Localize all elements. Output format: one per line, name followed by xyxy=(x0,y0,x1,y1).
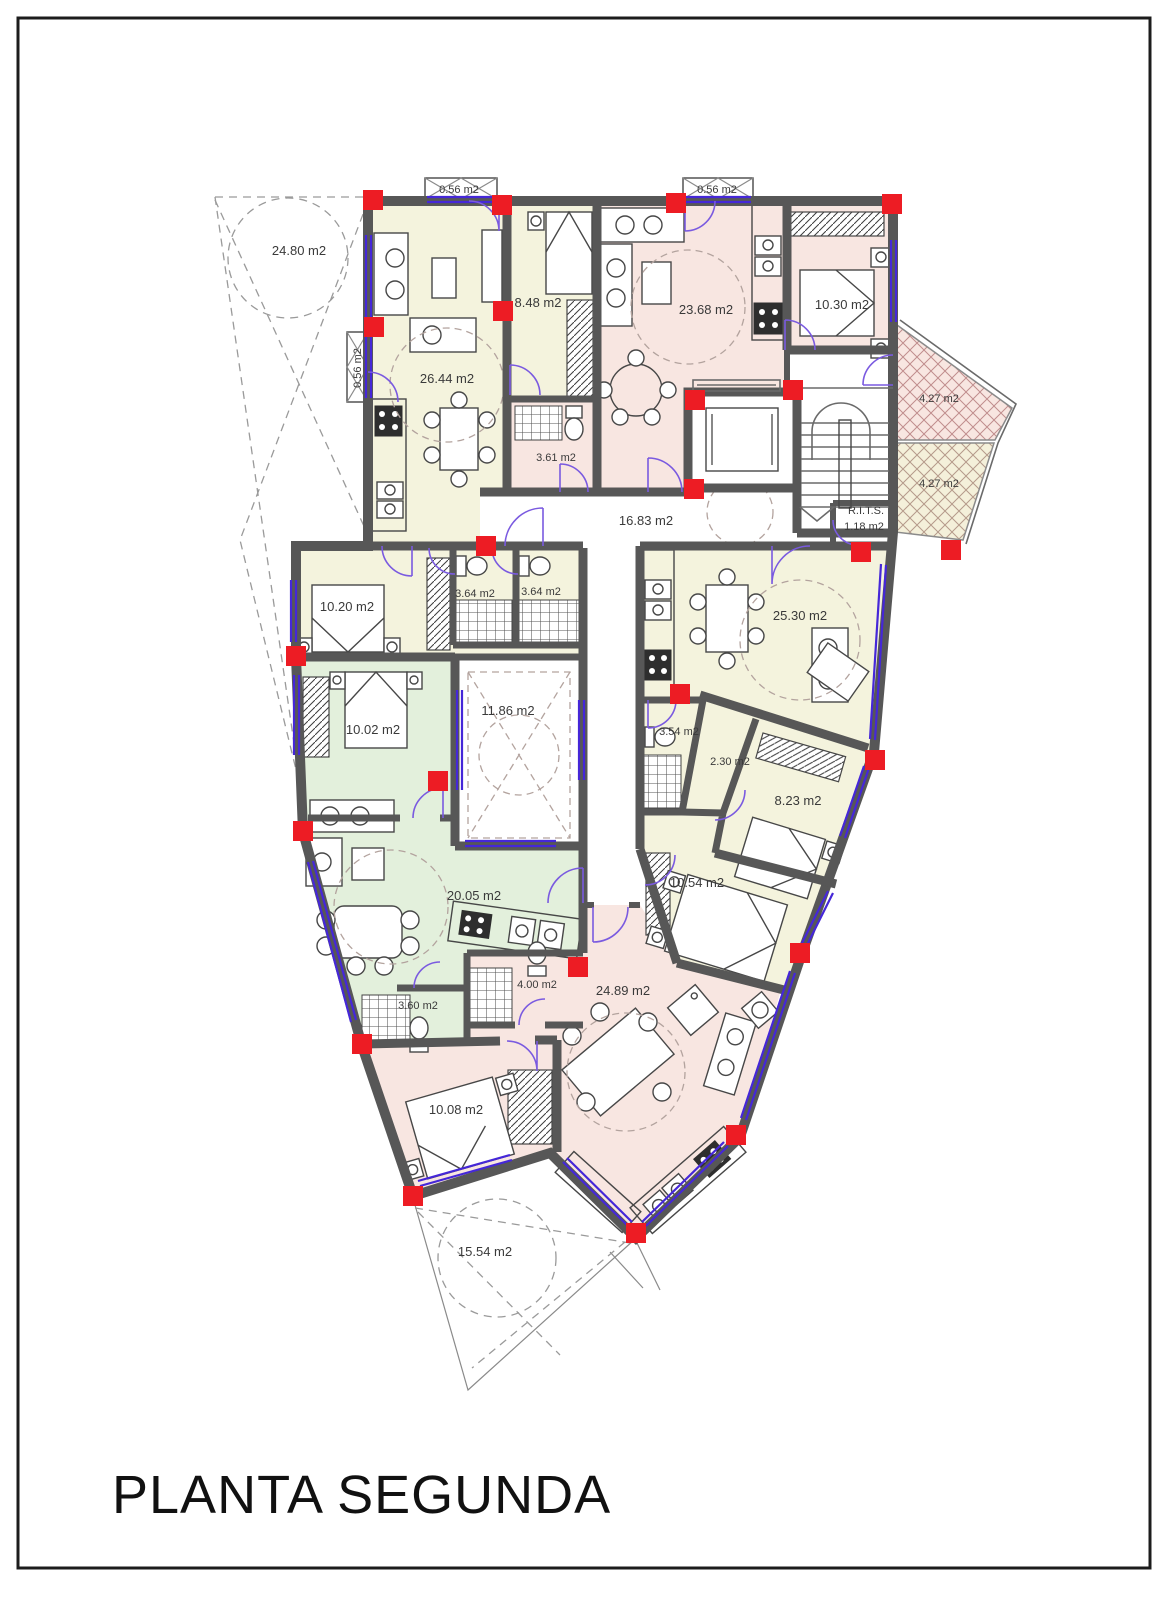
toilet-3-64-b xyxy=(519,556,550,576)
toilet-4-00 xyxy=(528,942,546,976)
area-label-3-61: 3.61 m2 xyxy=(536,452,576,464)
area-label-23-68: 23.68 m2 xyxy=(679,302,733,317)
area-label-balcony-left: 0.56 m2 xyxy=(352,348,364,388)
area-label-rits-area: 1.18 m2 xyxy=(844,521,884,533)
furniture-10-02 xyxy=(303,672,422,757)
area-label-25-30: 25.30 m2 xyxy=(773,608,827,623)
area-label-patio: 11.86 m2 xyxy=(481,703,534,718)
area-label-3-60: 3.60 m2 xyxy=(398,1000,438,1012)
area-label-terrace-upper: 4.27 m2 xyxy=(919,393,959,405)
area-label-10-30: 10.30 m2 xyxy=(815,297,869,312)
area-label-terrace-lower: 4.27 m2 xyxy=(919,478,959,490)
area-label-rits: R.I.T.S. xyxy=(848,505,884,517)
area-label-corridor: 16.83 m2 xyxy=(619,513,673,528)
area-label-parcel-bottom: 15.54 m2 xyxy=(458,1244,512,1259)
area-label-10-02: 10.02 m2 xyxy=(346,722,400,737)
toilet-3-64-a xyxy=(456,556,487,576)
toilet-3-61 xyxy=(565,406,583,440)
floor-plan-sheet: 24.80 m2 0.56 m2 0.56 m2 0.56 m2 26.44 m… xyxy=(0,0,1168,1600)
area-label-2-30: 2.30 m2 xyxy=(710,756,750,768)
area-label-balcony-2: 0.56 m2 xyxy=(697,184,737,196)
area-label-10-08: 10.08 m2 xyxy=(429,1102,483,1117)
area-label-24-89: 24.89 m2 xyxy=(596,983,650,998)
area-label-8-23: 8.23 m2 xyxy=(775,793,822,808)
area-label-8-48: 8.48 m2 xyxy=(515,295,562,310)
area-label-parcel-top: 24.80 m2 xyxy=(272,243,326,258)
sheet-title: PLANTA SEGUNDA xyxy=(112,1465,611,1525)
area-label-10-54: 10.54 m2 xyxy=(670,875,724,890)
area-label-10-20: 10.20 m2 xyxy=(320,599,374,614)
area-label-3-64-b: 3.64 m2 xyxy=(521,586,561,598)
area-label-3-54: 3.54 m2 xyxy=(659,726,699,738)
area-label-3-64-a: 3.64 m2 xyxy=(455,588,495,600)
title-block: PLANTA SEGUNDA xyxy=(112,1465,611,1525)
area-label-26-44: 26.44 m2 xyxy=(420,371,474,386)
area-label-20-05: 20.05 m2 xyxy=(447,888,501,903)
area-label-4-00: 4.00 m2 xyxy=(517,979,557,991)
area-label-balcony-1: 0.56 m2 xyxy=(439,184,479,196)
